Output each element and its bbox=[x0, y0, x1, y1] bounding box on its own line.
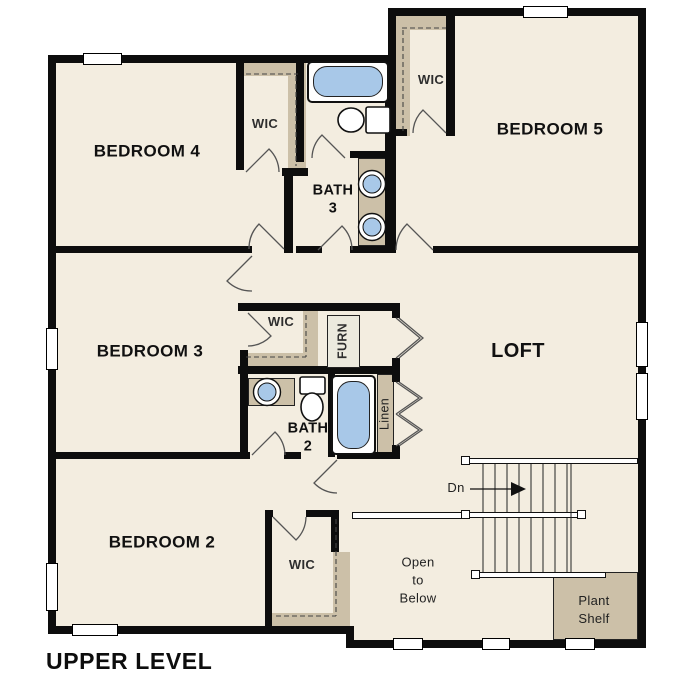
closet-label-wic-bedroom4: WIC bbox=[252, 116, 278, 132]
door-wic-bedroom5 bbox=[413, 110, 446, 133]
door-wic-bedroom2 bbox=[273, 517, 306, 540]
room-label-bedroom2: BEDROOM 2 bbox=[109, 533, 216, 554]
room-label-loft: LOFT bbox=[491, 339, 545, 363]
stair-treads-lower bbox=[483, 518, 567, 572]
closet-label-wic-bedroom2: WIC bbox=[289, 557, 315, 573]
door-bath3 bbox=[318, 226, 352, 250]
room-label-bedroom3: BEDROOM 3 bbox=[97, 342, 204, 363]
floor-plan: BEDROOM 4 BEDROOM 5 BEDROOM 3 BEDROOM 2 … bbox=[0, 0, 687, 687]
closet-label-linen: Linen bbox=[377, 398, 392, 430]
toilet-bowl-bath2 bbox=[301, 393, 323, 421]
room-label-bedroom5: BEDROOM 5 bbox=[497, 120, 604, 141]
stair-treads-upper bbox=[483, 464, 567, 512]
door-bath2 bbox=[252, 432, 285, 455]
room-label-bath2: BATH 2 bbox=[288, 420, 329, 455]
room-label-bedroom4: BEDROOM 4 bbox=[94, 142, 201, 163]
door-bath3-compartment bbox=[312, 135, 345, 158]
toilet-tank-bath3 bbox=[366, 107, 390, 133]
sink-bath3-basin bbox=[363, 218, 381, 236]
door-bedroom2 bbox=[314, 460, 337, 493]
room-label-bath3: BATH 3 bbox=[313, 182, 354, 217]
stairs-down-label: Dn bbox=[447, 480, 464, 496]
door-bedroom3 bbox=[227, 256, 252, 291]
stairs-down-arrow bbox=[470, 482, 526, 496]
bifold-door-linen bbox=[396, 382, 422, 446]
sink-bath3-basin bbox=[363, 175, 381, 193]
closet-label-wic-bedroom5: WIC bbox=[418, 72, 444, 88]
door-bedroom5 bbox=[396, 224, 433, 250]
open-to-below-label: Open to Below bbox=[400, 554, 437, 609]
page-title: UPPER LEVEL bbox=[46, 648, 212, 675]
bifold-door-furnace bbox=[396, 318, 423, 358]
closet-label-wic-bedroom3: WIC bbox=[268, 314, 294, 330]
door-bedroom4 bbox=[249, 224, 284, 249]
toilet-tank-bath2 bbox=[300, 377, 325, 394]
sink-bath2-basin bbox=[258, 383, 276, 401]
plant-shelf-label: Plant Shelf bbox=[578, 592, 609, 628]
toilet-bowl-bath3 bbox=[338, 108, 364, 132]
closet-label-furnace: FURN bbox=[335, 323, 350, 359]
door-wic-bedroom4 bbox=[246, 149, 279, 172]
